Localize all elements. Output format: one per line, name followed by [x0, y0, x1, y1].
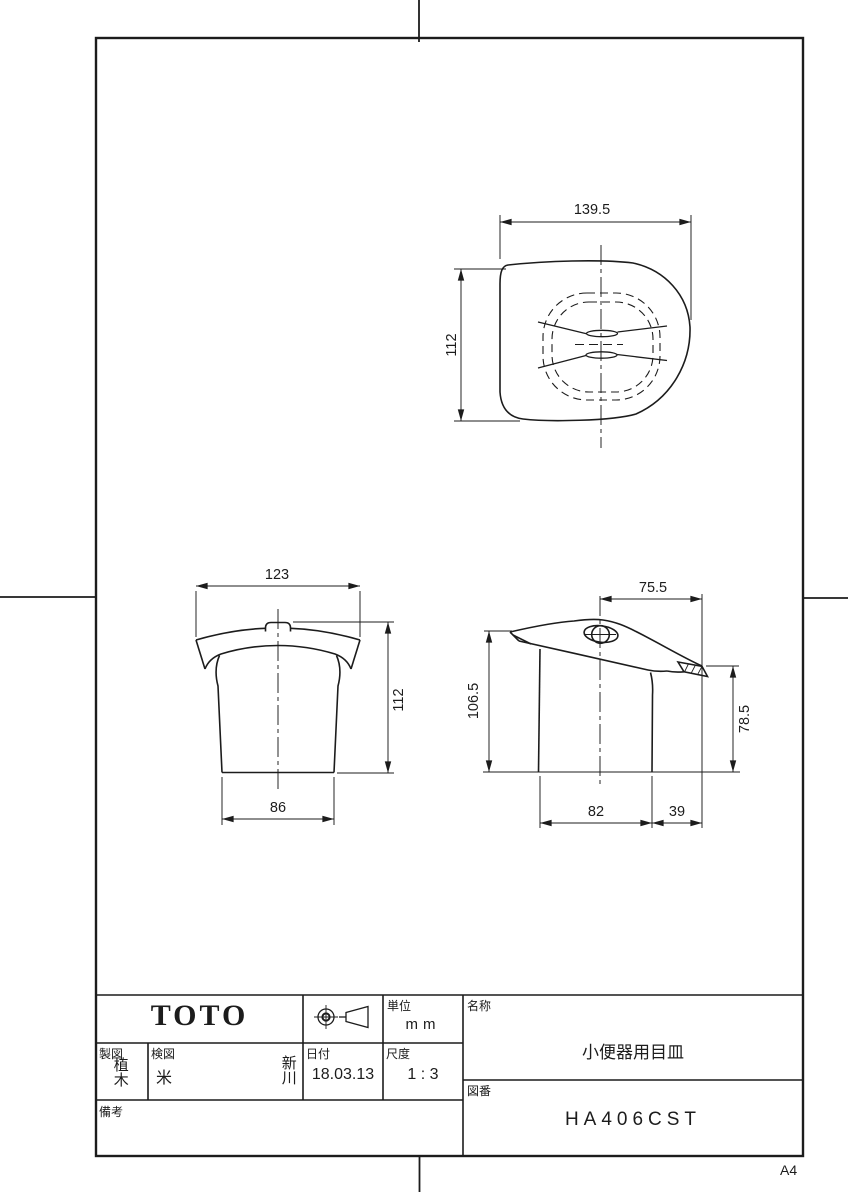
side-view-outline — [510, 620, 708, 772]
dim-side-height-left: 106.5 — [466, 683, 482, 719]
front-view: 123 112 86 — [196, 567, 407, 825]
drawing-number-label: 図番 — [467, 1082, 491, 1099]
lower-slot — [586, 352, 617, 358]
dim-top-height: 112 — [444, 333, 460, 356]
dim-side-base: 82 — [588, 804, 604, 820]
mounting-boss — [583, 624, 619, 644]
top-view-outline — [500, 261, 690, 421]
unit-label: 単位 — [387, 997, 411, 1014]
remarks-label: 備考 — [99, 1103, 123, 1120]
drafter-signature: 植木 — [112, 1057, 128, 1087]
paper-size-label: A4 — [780, 1162, 797, 1178]
scale-label: 尺度 — [386, 1045, 410, 1062]
side-view: 75.5 106.5 78.5 82 39 — [466, 580, 753, 828]
hidden-contour-inner — [552, 302, 653, 392]
dim-top-width: 139.5 — [574, 202, 610, 218]
front-view-dimensions — [196, 586, 394, 825]
top-view: 139.5 112 — [444, 202, 691, 448]
date-label: 日付 — [306, 1045, 330, 1062]
scale-value: 1 : 3 — [383, 1066, 463, 1084]
drawing-frame — [96, 38, 803, 1156]
hidden-contour-outer — [543, 293, 660, 400]
projection-cone-icon — [346, 1007, 368, 1028]
part-name-value: 小便器用目皿 — [463, 1038, 803, 1063]
dim-front-width: 123 — [265, 567, 289, 583]
unit-value: mm — [383, 1016, 463, 1033]
toto-logo: TOTO — [96, 999, 303, 1033]
checker-signature-1: 米 — [156, 1064, 172, 1088]
flange-tip-section — [678, 662, 708, 677]
drawing-sheet: 139.5 112 123 112 86 — [0, 0, 848, 1200]
projection-symbol — [314, 1005, 368, 1029]
drawing-number-value: HA406CST — [463, 1109, 803, 1131]
dim-side-top-offset: 75.5 — [639, 580, 667, 596]
dim-side-flange-overhang: 39 — [669, 804, 685, 820]
dim-side-height-right: 78.5 — [737, 705, 753, 733]
checker-signature-2: 新川 — [280, 1055, 296, 1085]
checker-label: 検図 — [151, 1045, 175, 1062]
dim-front-height: 112 — [391, 688, 407, 711]
part-name-label: 名称 — [467, 997, 491, 1014]
dim-front-base: 86 — [270, 800, 286, 816]
slot-section-lines — [538, 322, 667, 368]
date-value: 18.03.13 — [303, 1066, 383, 1084]
upper-slot — [587, 330, 618, 336]
